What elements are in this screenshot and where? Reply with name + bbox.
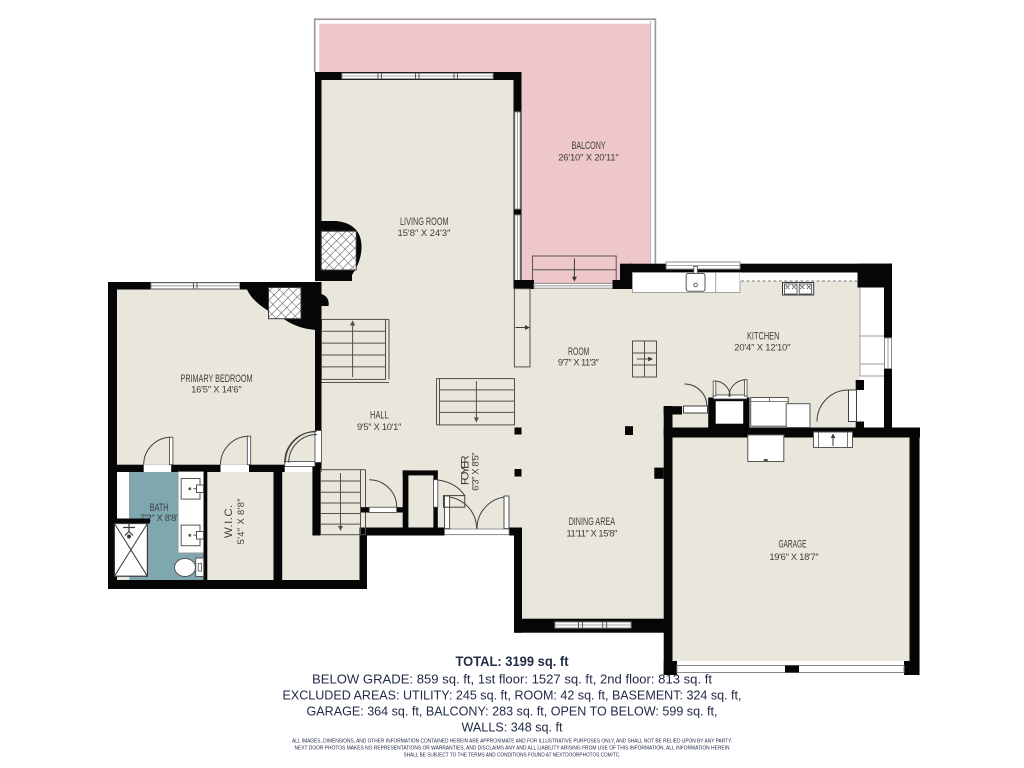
svg-text:NEXT DOOR PHOTOS MAKES NO REPR: NEXT DOOR PHOTOS MAKES NO REPRESENTATION… [295, 746, 730, 752]
svg-text:16′5″ X 14′6″: 16′5″ X 14′6″ [191, 384, 242, 395]
svg-text:20′4″ X 12′10″: 20′4″ X 12′10″ [734, 341, 791, 352]
svg-text:BALCONY: BALCONY [572, 140, 606, 152]
svg-text:19′6″ X 18′7″: 19′6″ X 18′7″ [769, 551, 819, 562]
svg-text:GARAGE: 364 sq. ft, BALCONY: 2: GARAGE: 364 sq. ft, BALCONY: 283 sq. ft,… [307, 704, 718, 719]
svg-text:W.I.C.: W.I.C. [223, 504, 235, 538]
svg-text:9′5″ X 10′1″: 9′5″ X 10′1″ [357, 421, 402, 432]
svg-text:SHALL BE SUBJECT TO THE TERMS: SHALL BE SUBJECT TO THE TERMS AND CONDIT… [404, 753, 621, 759]
svg-text:WALLS: 348 sq. ft: WALLS: 348 sq. ft [462, 720, 563, 735]
svg-text:HALL: HALL [370, 410, 389, 422]
svg-text:11′11″ X 15′8″: 11′11″ X 15′8″ [566, 527, 618, 538]
svg-text:ALL IMAGES, DIMENSIONS, AND OT: ALL IMAGES, DIMENSIONS, AND OTHER INFORM… [292, 739, 732, 745]
svg-text:GARAGE: GARAGE [778, 538, 806, 550]
svg-text:TOTAL: 3199 sq. ft: TOTAL: 3199 sq. ft [456, 653, 569, 669]
svg-text:15′8″ X 24′3″: 15′8″ X 24′3″ [398, 227, 452, 238]
svg-text:5′4″ X 8′8″: 5′4″ X 8′8″ [235, 498, 246, 545]
svg-text:6′3″ X 8′5″: 6′3″ X 8′5″ [470, 452, 481, 491]
svg-text:BELOW GRADE: 859 sq. ft, 1st f: BELOW GRADE: 859 sq. ft, 1st floor: 1527… [312, 672, 712, 687]
svg-text:EXCLUDED AREAS: UTILITY: 245 s: EXCLUDED AREAS: UTILITY: 245 sq. ft, ROO… [283, 688, 742, 703]
svg-text:DINING AREA: DINING AREA [569, 516, 616, 528]
svg-text:9′7″ X 11′3″: 9′7″ X 11′3″ [558, 357, 600, 368]
svg-text:26′10″ X 20′11″: 26′10″ X 20′11″ [558, 152, 619, 163]
